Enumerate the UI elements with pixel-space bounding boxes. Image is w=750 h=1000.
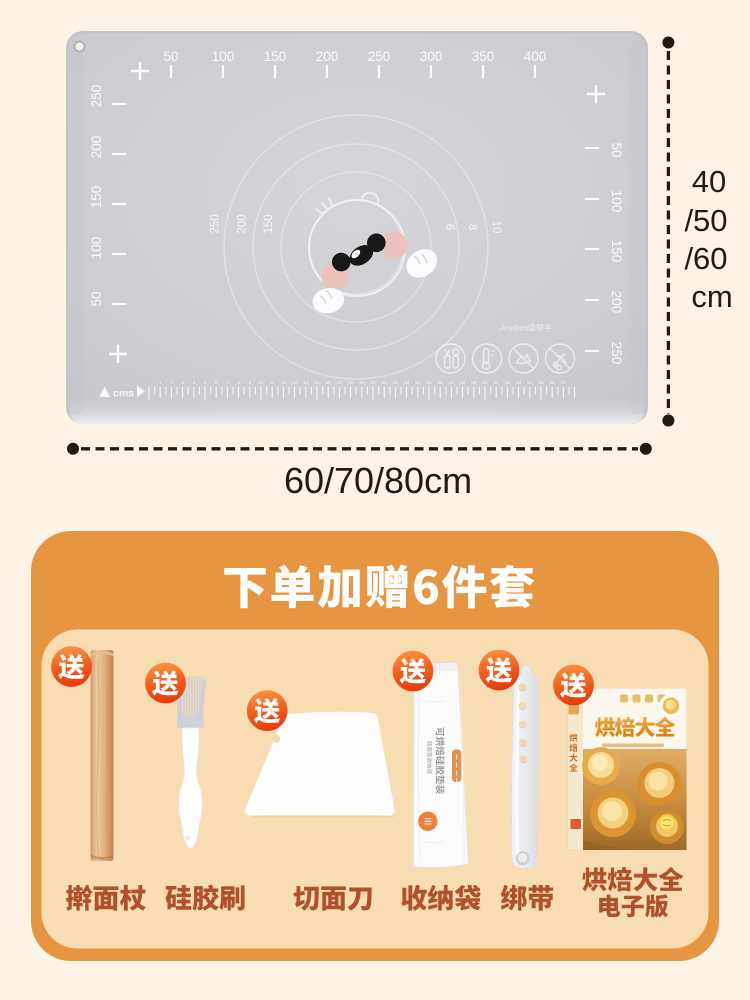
svg-text:33: 33 — [516, 380, 522, 386]
svg-text:100: 100 — [212, 49, 235, 64]
svg-text:28: 28 — [460, 380, 466, 386]
svg-text:250: 250 — [368, 49, 391, 64]
svg-text:400: 400 — [524, 49, 547, 64]
svg-text:50: 50 — [163, 49, 178, 64]
svg-text:1: 1 — [159, 380, 162, 386]
svg-text:200: 200 — [89, 136, 104, 159]
svg-text:60/70/80cm: 60/70/80cm — [284, 460, 472, 501]
svg-text:250: 250 — [210, 214, 222, 233]
svg-text:37: 37 — [561, 380, 567, 386]
svg-text:150: 150 — [264, 49, 287, 64]
svg-text:34: 34 — [527, 380, 533, 386]
svg-text:12: 12 — [281, 380, 287, 386]
svg-text:26: 26 — [438, 380, 444, 386]
svg-text:150: 150 — [89, 186, 104, 209]
svg-text:14: 14 — [303, 380, 309, 386]
svg-text:200: 200 — [237, 214, 249, 233]
svg-text:27: 27 — [449, 380, 455, 386]
svg-text:13: 13 — [292, 380, 298, 386]
svg-text:10: 10 — [490, 221, 502, 234]
svg-text:150: 150 — [609, 240, 624, 263]
svg-text:100: 100 — [89, 237, 104, 260]
svg-text:200: 200 — [316, 49, 339, 64]
svg-text:20: 20 — [370, 380, 376, 386]
svg-text:10: 10 — [258, 380, 264, 386]
svg-text:17: 17 — [337, 380, 343, 386]
svg-text:4: 4 — [192, 380, 195, 386]
svg-text:/50: /50 — [684, 203, 727, 238]
svg-text:29: 29 — [471, 380, 477, 386]
svg-text:cm: cm — [691, 279, 732, 314]
svg-text:300: 300 — [420, 49, 443, 64]
svg-text:16: 16 — [326, 380, 332, 386]
svg-text:250: 250 — [609, 342, 624, 365]
svg-text:200: 200 — [609, 291, 624, 314]
svg-text:3: 3 — [181, 380, 184, 386]
svg-text:50: 50 — [89, 291, 104, 306]
svg-text:15: 15 — [314, 380, 320, 386]
svg-text:23: 23 — [404, 380, 410, 386]
svg-text:250: 250 — [89, 85, 104, 108]
svg-text:50: 50 — [609, 142, 624, 157]
svg-text:18: 18 — [348, 380, 354, 386]
svg-text:32: 32 — [505, 380, 511, 386]
svg-text:/60: /60 — [684, 241, 727, 276]
svg-text:24: 24 — [415, 380, 421, 386]
svg-text:8: 8 — [466, 224, 478, 230]
svg-text:11: 11 — [270, 380, 275, 386]
svg-text:36: 36 — [550, 380, 556, 386]
svg-text:Joybos: Joybos — [499, 323, 529, 333]
svg-text:5: 5 — [204, 380, 207, 386]
svg-text:150: 150 — [263, 214, 275, 233]
svg-text:100: 100 — [609, 190, 624, 213]
svg-text:350: 350 — [472, 49, 495, 64]
svg-text:8: 8 — [237, 380, 240, 386]
svg-text:30: 30 — [482, 380, 488, 386]
svg-text:19: 19 — [359, 380, 365, 386]
svg-text:25: 25 — [426, 380, 432, 386]
svg-text:9: 9 — [248, 380, 251, 386]
svg-text:35: 35 — [538, 380, 544, 386]
svg-text:40: 40 — [692, 164, 726, 199]
svg-text:31: 31 — [494, 380, 500, 386]
svg-text:cms: cms — [113, 388, 134, 400]
svg-text:22: 22 — [393, 380, 399, 386]
svg-text:7: 7 — [226, 380, 229, 386]
svg-text:2: 2 — [170, 380, 173, 386]
svg-text:6: 6 — [215, 380, 218, 386]
svg-text:6: 6 — [443, 224, 455, 230]
svg-text:21: 21 — [382, 380, 388, 386]
